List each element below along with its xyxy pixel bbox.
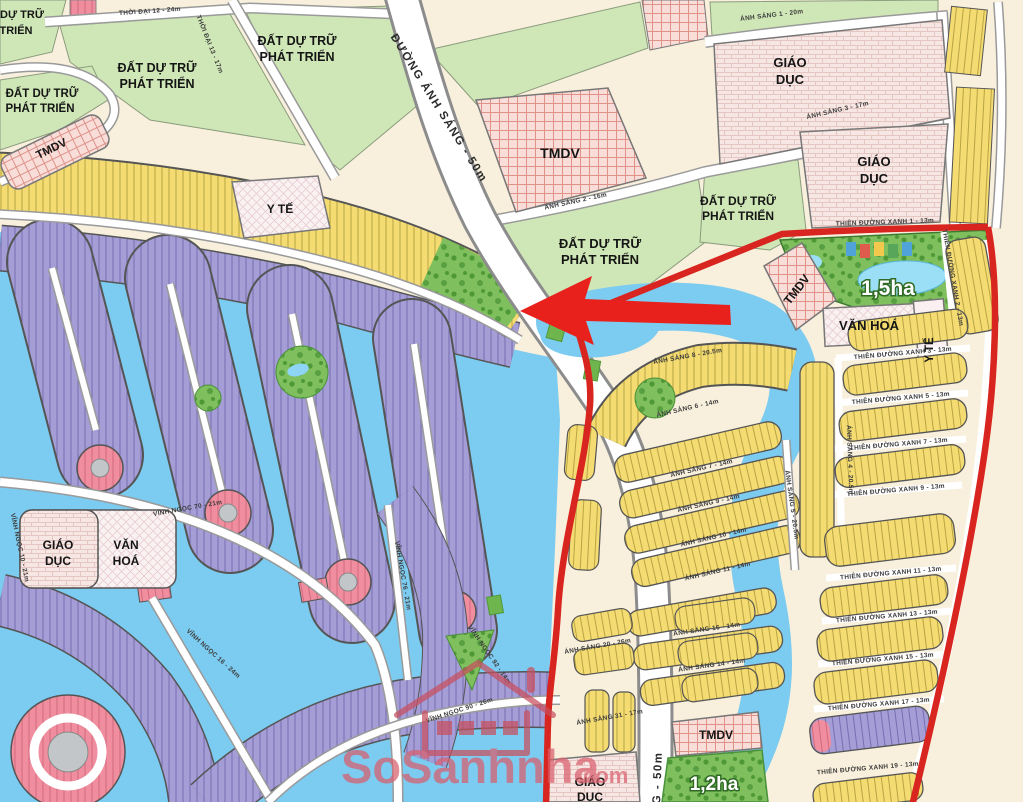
reserve-label: PHÁT TRIỂN: [120, 76, 195, 91]
masterplan-map: DỰ TRỮ TRIỂN ĐẤT DỰ TRỮ PHÁT TRIỂN ĐẤT D…: [0, 0, 1023, 802]
lot-strip: [945, 6, 988, 75]
reserve-label-cut: DỰ TRỮ: [0, 8, 45, 21]
lot-column: [800, 362, 834, 557]
reserve-label: PHÁT TRIỂN: [6, 102, 75, 115]
reserve-label: ĐẤT DỰ TRỮ: [700, 193, 776, 208]
lake-park: [195, 385, 221, 411]
reserve-label: PHÁT TRIỂN: [702, 208, 774, 223]
giao-duc-label: GIÁO: [43, 537, 74, 552]
van-hoa-label: VĂN: [113, 537, 138, 552]
giao-duc-label: DỤC: [45, 554, 71, 568]
y-te-label: Y TẾ: [267, 201, 293, 216]
giao-duc-label: GIÁO: [773, 55, 806, 70]
reserve-label-cut: TRIỂN: [0, 24, 33, 37]
reserve-label: ĐẤT DỰ TRỮ: [117, 60, 197, 75]
lot-strip: [949, 87, 994, 224]
avenue-label-bottom: G - 50m: [651, 751, 665, 802]
giao-duc-label: GIÁO: [857, 154, 890, 169]
reserve-label: ĐẤT DỰ TRỮ: [257, 33, 337, 48]
tmdv-label: TMDV: [540, 145, 580, 161]
park-area-label: 1,5ha: [861, 277, 915, 300]
giao-duc-label: DỤC: [860, 171, 889, 186]
van-hoa-label: HOÁ: [113, 553, 140, 568]
park-buildings: [846, 242, 912, 258]
reserve-label: ĐẤT DỰ TRỮ: [559, 236, 641, 251]
green-lot: [487, 595, 504, 615]
park-area-label: 1,2ha: [690, 774, 739, 795]
culdesac-circle: [11, 695, 125, 802]
watermark-brand: SoSanhnha: [341, 740, 600, 793]
tmdv-label: TMDV: [699, 728, 733, 742]
van-hoa-label: VĂN HOÁ: [839, 318, 900, 333]
reserve-label: PHÁT TRIỂN: [260, 49, 335, 64]
giao-duc-label: DỤC: [776, 72, 805, 87]
reserve-label: PHÁT TRIỂN: [561, 252, 639, 267]
lot-column: [613, 692, 635, 752]
reserve-label: ĐẤT DỰ TRỮ: [6, 87, 79, 100]
watermark-suffix: .com: [577, 763, 628, 788]
